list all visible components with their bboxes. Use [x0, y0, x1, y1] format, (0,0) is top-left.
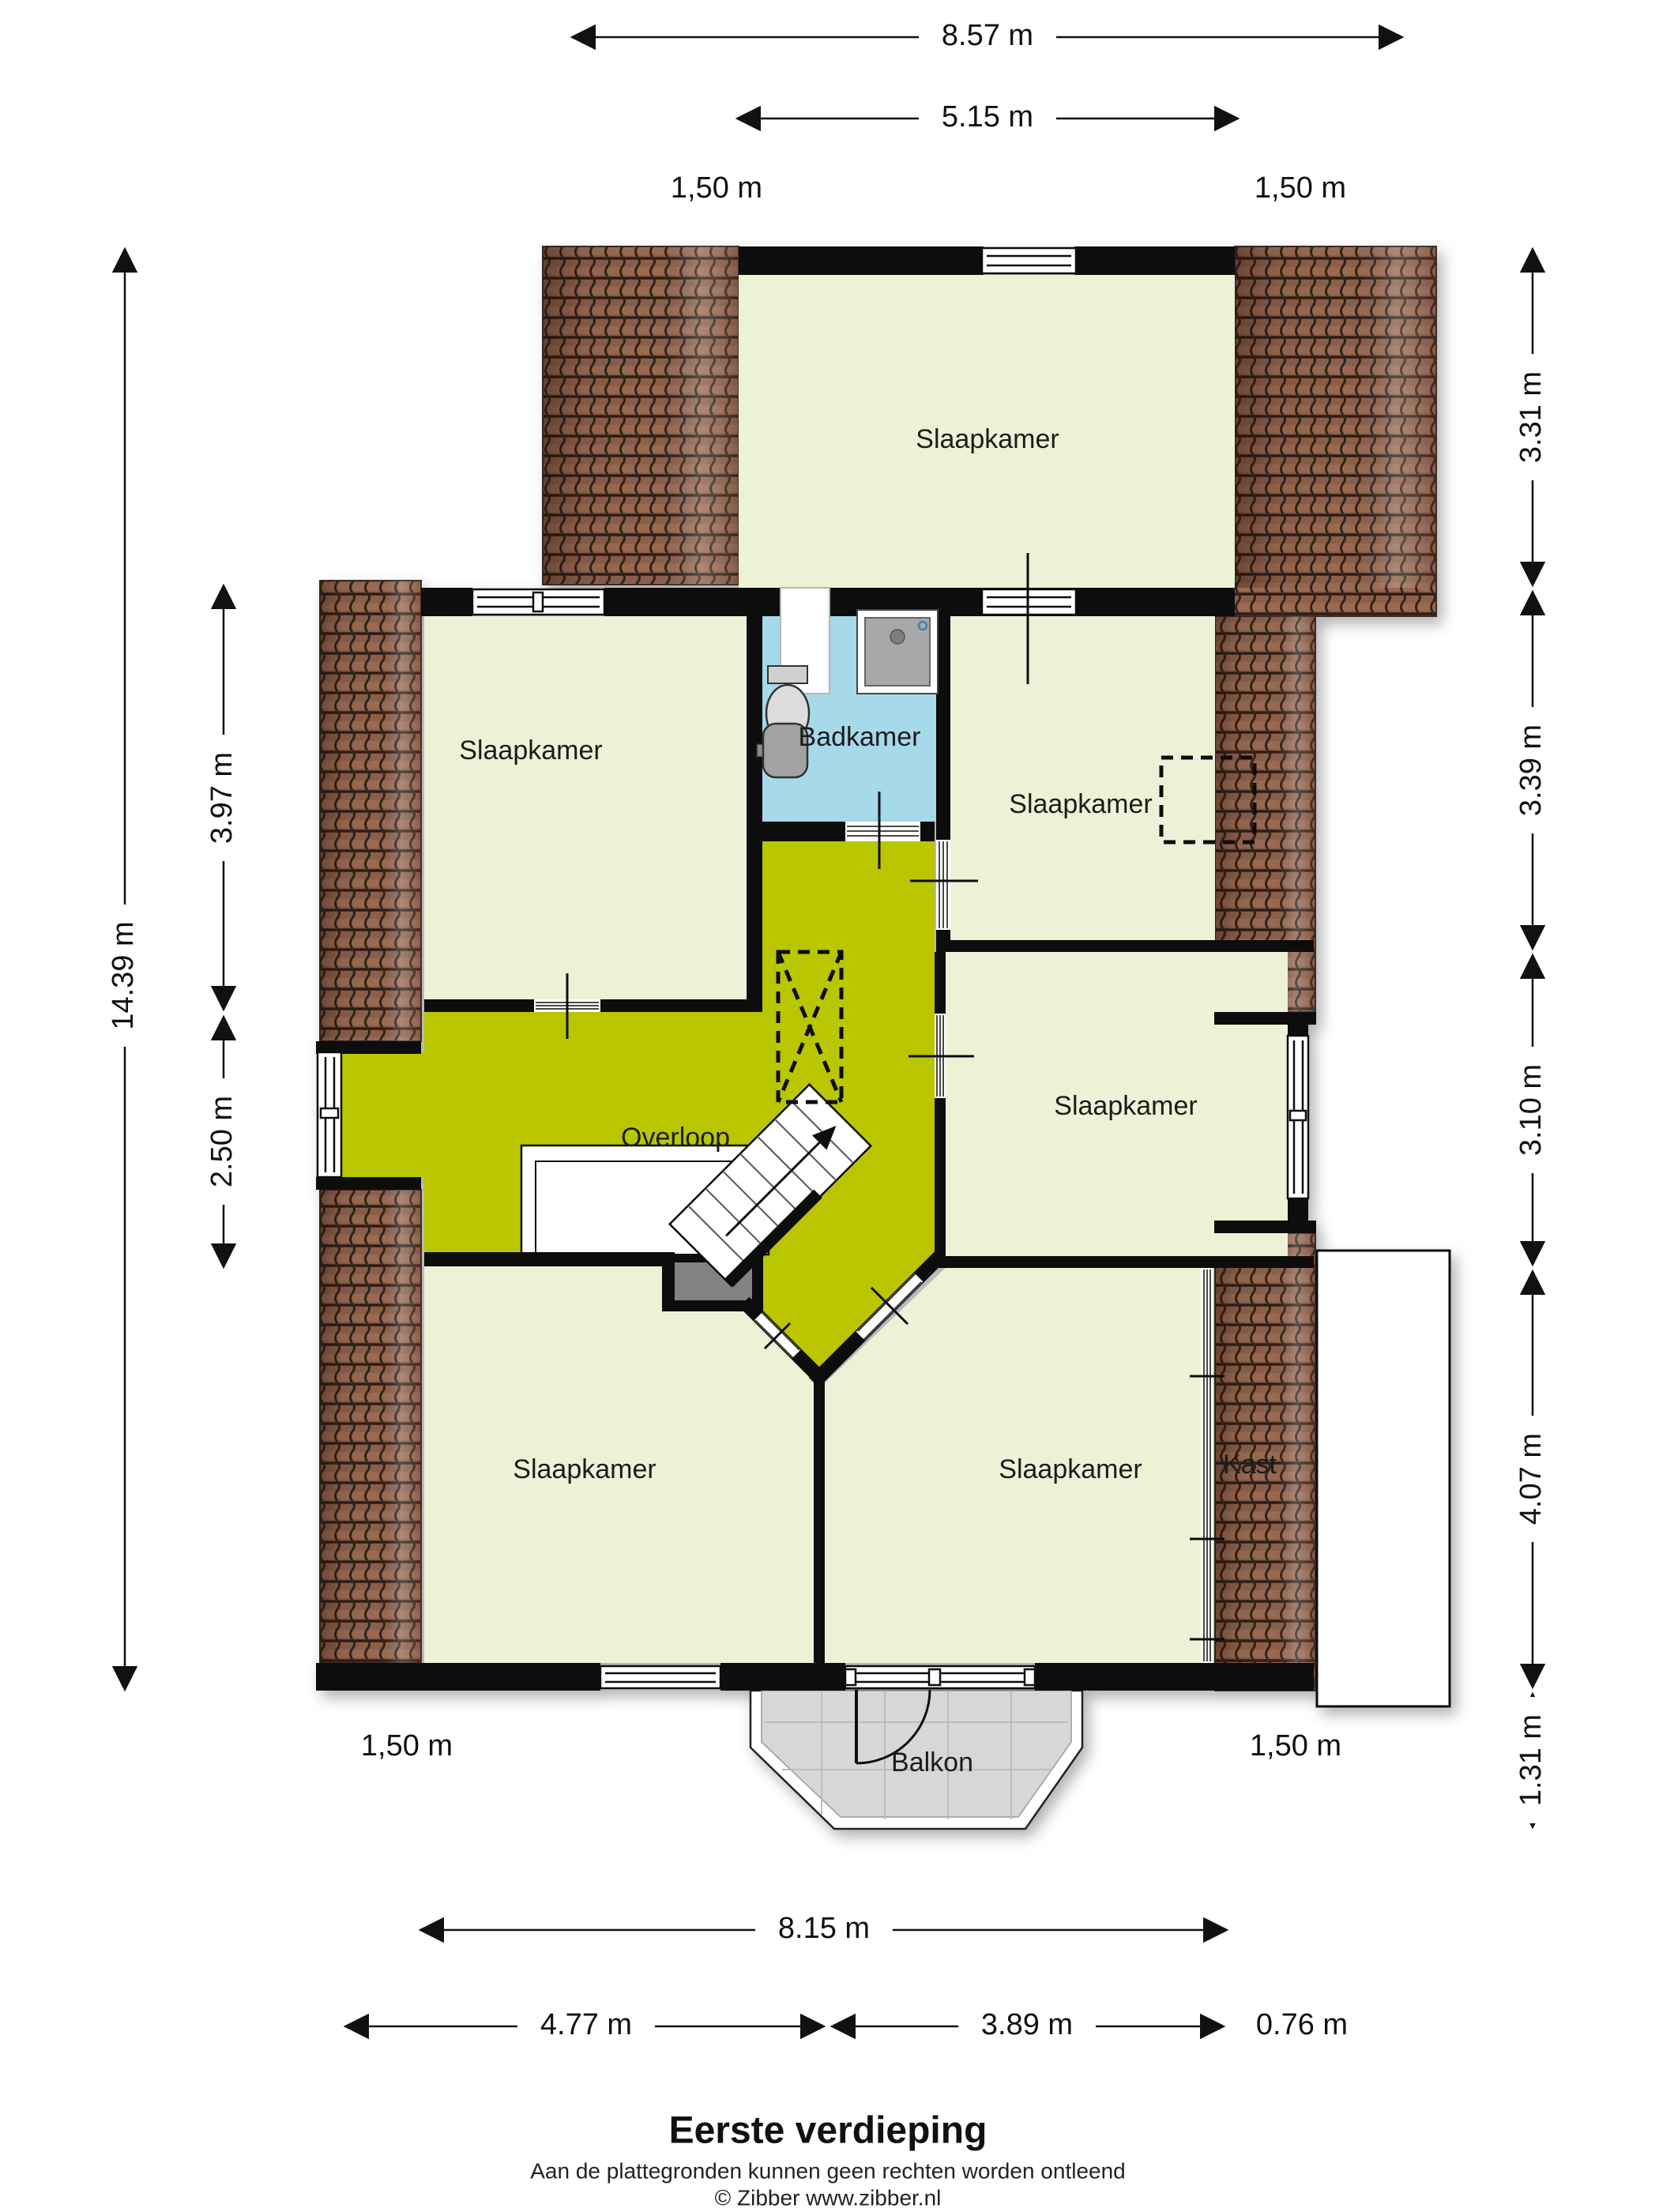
dim-top-room-width-label: 5.15 m — [942, 100, 1033, 134]
room-bedroom-bottom-left-label: Slaapkamer — [513, 1454, 656, 1484]
roof-shade — [320, 1190, 421, 1663]
flat-roof-bay-outline — [1317, 1251, 1450, 1706]
dim-eave-bottom-left-label: 1,50 m — [361, 1729, 453, 1762]
room-bedroom-right-mid-label: Slaapkamer — [1054, 1091, 1197, 1121]
room-bedroom-right-upper — [950, 616, 1215, 940]
disclaimer-text: Aan de plattegronden kunnen geen rechten… — [530, 2158, 1125, 2183]
dim-bottom-center-label: 3.89 m — [981, 2008, 1073, 2041]
window-top-bedroom-north — [982, 248, 1076, 273]
room-bedroom-bottom-center-label: Slaapkamer — [999, 1454, 1142, 1484]
dim-eave-bottom-right-label: 1,50 m — [1250, 1729, 1341, 1762]
roof-top-left-shade — [543, 246, 739, 585]
window-bedroom-right-mid-east — [1288, 1036, 1308, 1198]
page-title: Eerste verdieping — [669, 2110, 987, 2152]
dim-right-top-label: 3.31 m — [1514, 371, 1548, 463]
copyright-text: © Zibber www.zibber.nl — [715, 2185, 942, 2210]
dim-bottom-right-label: 0.76 m — [1256, 2008, 1348, 2041]
room-closet-label: Kast — [1223, 1450, 1277, 1480]
shower-icon — [857, 610, 938, 694]
room-bedroom-left-label: Slaapkamer — [459, 735, 602, 766]
dim-right-upper-mid-label: 3.39 m — [1514, 724, 1548, 816]
dim-left-upper-label: 3.97 m — [205, 752, 239, 844]
room-landing-label: Overloop — [621, 1123, 730, 1153]
room-bathroom-label: Badkamer — [799, 722, 921, 752]
dim-right-balcony-label: 1.31 m — [1514, 1714, 1548, 1806]
caption-block: Eerste verdieping Aan de plattegronden k… — [530, 2110, 1125, 2210]
dim-bottom-total-label: 8.15 m — [778, 1912, 870, 1945]
dim-right-bottom-label: 4.07 m — [1514, 1433, 1548, 1525]
dim-eave-top-right-label: 1,50 m — [1255, 171, 1346, 205]
room-bedroom-left — [424, 616, 747, 999]
dim-bottom-left-label: 4.77 m — [540, 2008, 632, 2041]
window-landing-west — [318, 1052, 341, 1177]
window-bedroom-left-north — [472, 589, 604, 615]
dim-eave-top-left-label: 1,50 m — [671, 171, 762, 205]
roof-shade — [320, 581, 421, 1041]
dim-overall-width-label: 8.57 m — [942, 19, 1033, 52]
room-bedroom-right-upper-label: Slaapkamer — [1009, 789, 1152, 819]
dim-right-lower-mid-label: 3.10 m — [1514, 1064, 1548, 1156]
floorplan-canvas: Slaapkamer Slaapkamer Badkamer Slaapkame… — [0, 0, 1659, 2212]
dim-overall-height-label: 14.39 m — [107, 921, 140, 1029]
room-landing-window-nook — [341, 1052, 424, 1177]
room-bedroom-top-label: Slaapkamer — [916, 424, 1059, 454]
roof-top-right-shade — [1235, 246, 1436, 588]
floorplan: Slaapkamer Slaapkamer Badkamer Slaapkame… — [316, 246, 1450, 1829]
window-bedroom-bottom-left-south — [600, 1666, 720, 1688]
room-balcony-label: Balkon — [891, 1747, 973, 1777]
floorplan-page: Slaapkamer Slaapkamer Badkamer Slaapkame… — [0, 0, 1659, 2212]
dim-left-lower-label: 2.50 m — [205, 1096, 239, 1187]
